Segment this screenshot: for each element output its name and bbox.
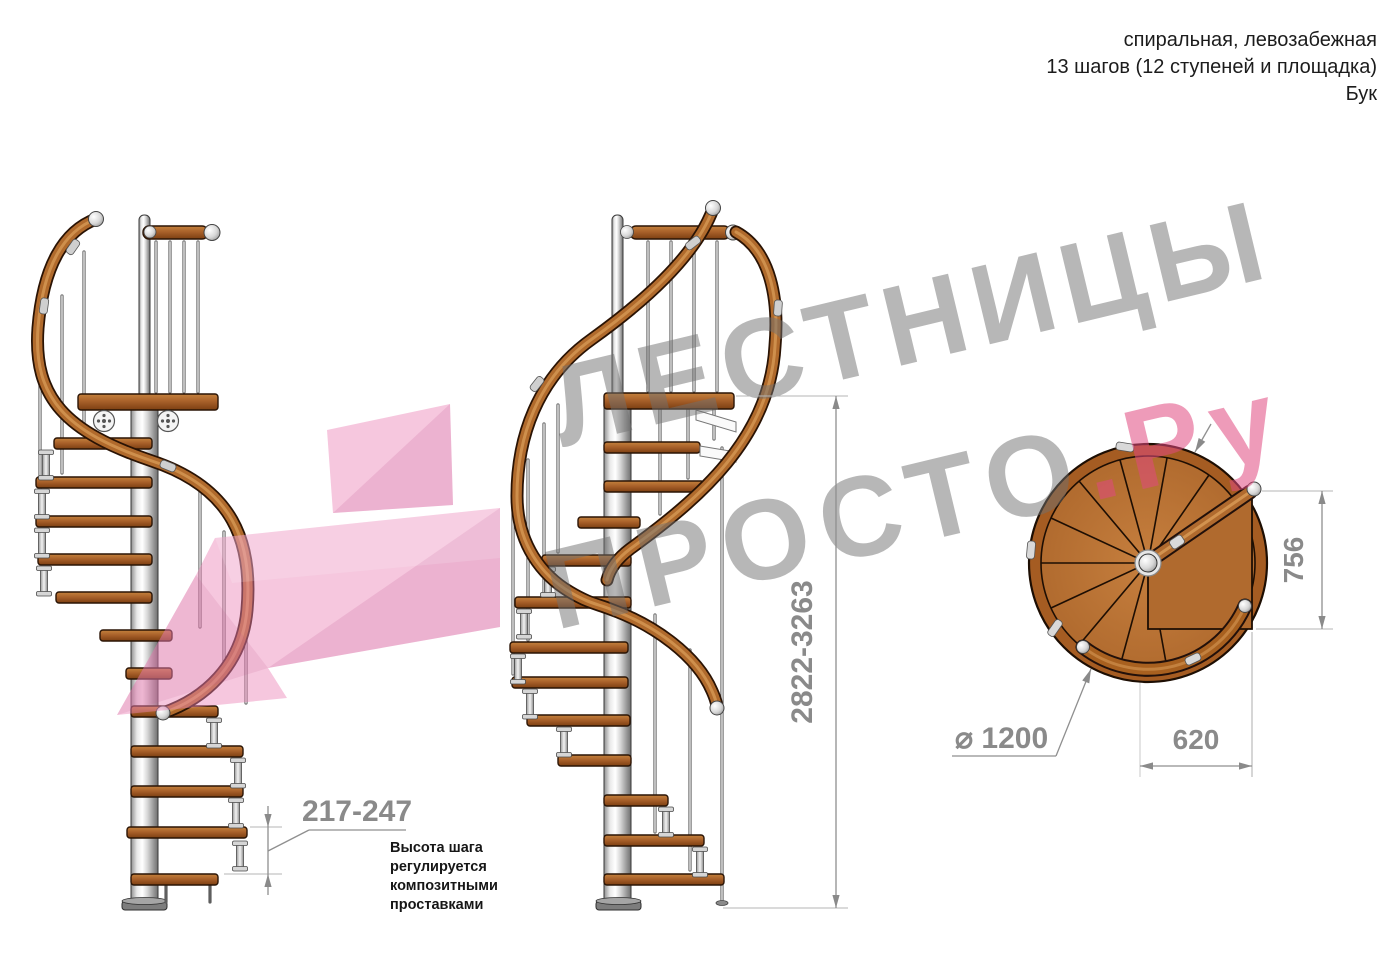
- step: [131, 874, 218, 885]
- note-line-4: проставками: [390, 897, 483, 913]
- handrail-start-cap: [89, 212, 104, 227]
- note-line-3: композитными: [390, 878, 498, 894]
- base-flange: [596, 898, 641, 911]
- title-line-steps: 13 шагов (12 ступеней и площадка): [1046, 54, 1377, 81]
- title-block: спиральная, левозабежная 13 шагов (12 ст…: [1046, 27, 1377, 108]
- base-flange: [122, 898, 167, 911]
- pink-arrow-watermark: [117, 404, 500, 715]
- step: [512, 677, 628, 688]
- title-line-type: спиральная, левозабежная: [1046, 27, 1377, 54]
- staircase-drawing: ЛЕСТНИЦЫ ПРОСТО.Ру 2822-3263: [0, 0, 1400, 961]
- step: [38, 554, 152, 565]
- title-line-material: Бук: [1046, 81, 1377, 108]
- step: [131, 786, 243, 797]
- note-line-2: регулируется: [390, 859, 487, 875]
- pole-top-ball: [1139, 554, 1157, 572]
- platform-top-rail: [621, 225, 741, 240]
- rail-end-cap: [204, 225, 220, 241]
- step: [131, 746, 243, 757]
- dim-step-height: 217-247: [224, 795, 412, 895]
- platform: [78, 394, 218, 410]
- step: [56, 592, 152, 603]
- total-height-label: 2822-3263: [786, 580, 819, 723]
- railing-post: [139, 215, 150, 398]
- diameter-label: ⌀ 1200: [955, 722, 1048, 755]
- step-height-label: 217-247: [302, 795, 412, 828]
- platform-top-rail: [143, 225, 220, 241]
- step: [604, 481, 704, 492]
- step: [127, 827, 247, 838]
- note-line-1: Высота шага: [390, 840, 484, 856]
- drawing-page: спиральная, левозабежная 13 шагов (12 ст…: [0, 0, 1400, 961]
- landing-depth-label: 756: [1278, 537, 1309, 584]
- handrail-end-cap: [710, 701, 724, 715]
- watermark-line2-pink: .Ру: [1069, 354, 1300, 526]
- step: [604, 795, 668, 806]
- step: [36, 516, 152, 527]
- step-height-note: Высота шага регулируется композитными пр…: [390, 840, 498, 913]
- handrail-start-cap: [706, 201, 721, 216]
- step: [527, 715, 630, 726]
- landing-width-label: 620: [1173, 724, 1220, 755]
- step: [604, 835, 704, 846]
